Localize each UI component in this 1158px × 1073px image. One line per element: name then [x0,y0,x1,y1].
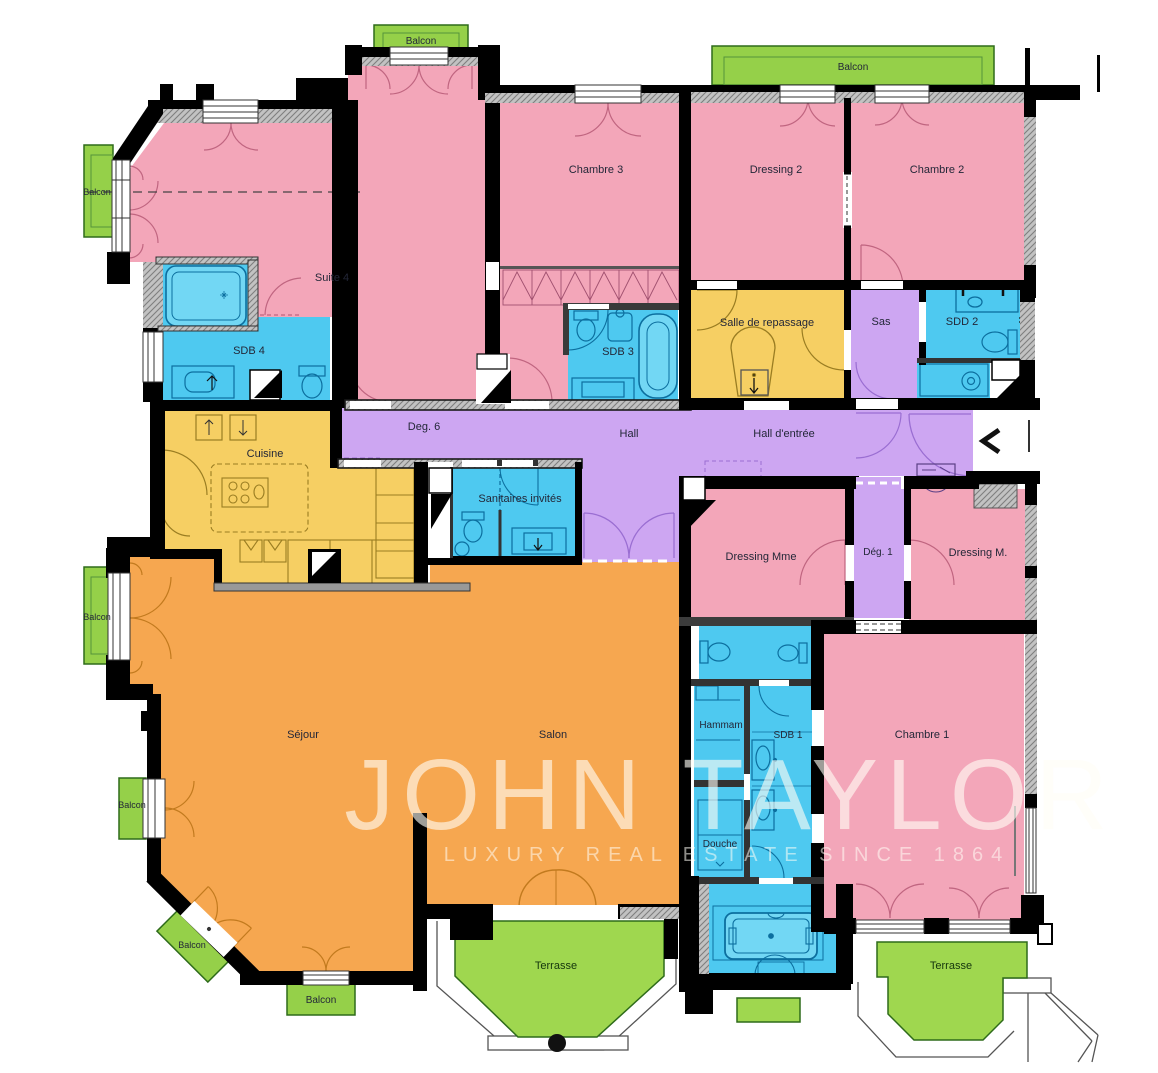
svg-text:Dressing 2: Dressing 2 [750,164,803,176]
svg-text:Salle de repassage: Salle de repassage [720,317,814,329]
svg-text:Sanitaires invités: Sanitaires invités [478,493,562,505]
svg-text:Terrasse: Terrasse [930,960,972,972]
svg-text:Dég. 1: Dég. 1 [863,547,893,558]
svg-text:Balcon: Balcon [838,62,869,73]
svg-text:LUXURY REAL ESTATE SINCE 1864: LUXURY REAL ESTATE SINCE 1864 [444,844,1011,866]
svg-text:Balcon: Balcon [118,800,146,810]
svg-text:Balcon: Balcon [306,995,337,1006]
svg-text:Balcon: Balcon [178,940,206,950]
svg-text:SDB 3: SDB 3 [602,346,634,358]
svg-text:Suite 4: Suite 4 [315,272,349,284]
svg-text:Sas: Sas [872,316,891,328]
svg-text:Chambre 3: Chambre 3 [569,164,623,176]
svg-text:Dressing Mme: Dressing Mme [726,551,797,563]
svg-text:Séjour: Séjour [287,729,319,741]
svg-text:SDB 4: SDB 4 [233,345,265,357]
svg-text:SDD 2: SDD 2 [946,316,978,328]
svg-text:Balcon: Balcon [406,36,437,47]
svg-text:Chambre 2: Chambre 2 [910,164,964,176]
svg-text:Balcon: Balcon [83,187,111,197]
svg-text:Dressing M.: Dressing M. [949,547,1008,559]
svg-text:Cuisine: Cuisine [247,448,284,460]
svg-text:JOHN TAYLOR: JOHN TAYLOR [344,739,1115,851]
svg-text:Terrasse: Terrasse [535,960,577,972]
svg-text:Deg. 6: Deg. 6 [408,421,440,433]
svg-text:Hammam: Hammam [699,720,742,731]
svg-text:Hall: Hall [620,428,639,440]
svg-text:Balcon: Balcon [83,612,111,622]
svg-text:Hall d'entrée: Hall d'entrée [753,428,814,440]
